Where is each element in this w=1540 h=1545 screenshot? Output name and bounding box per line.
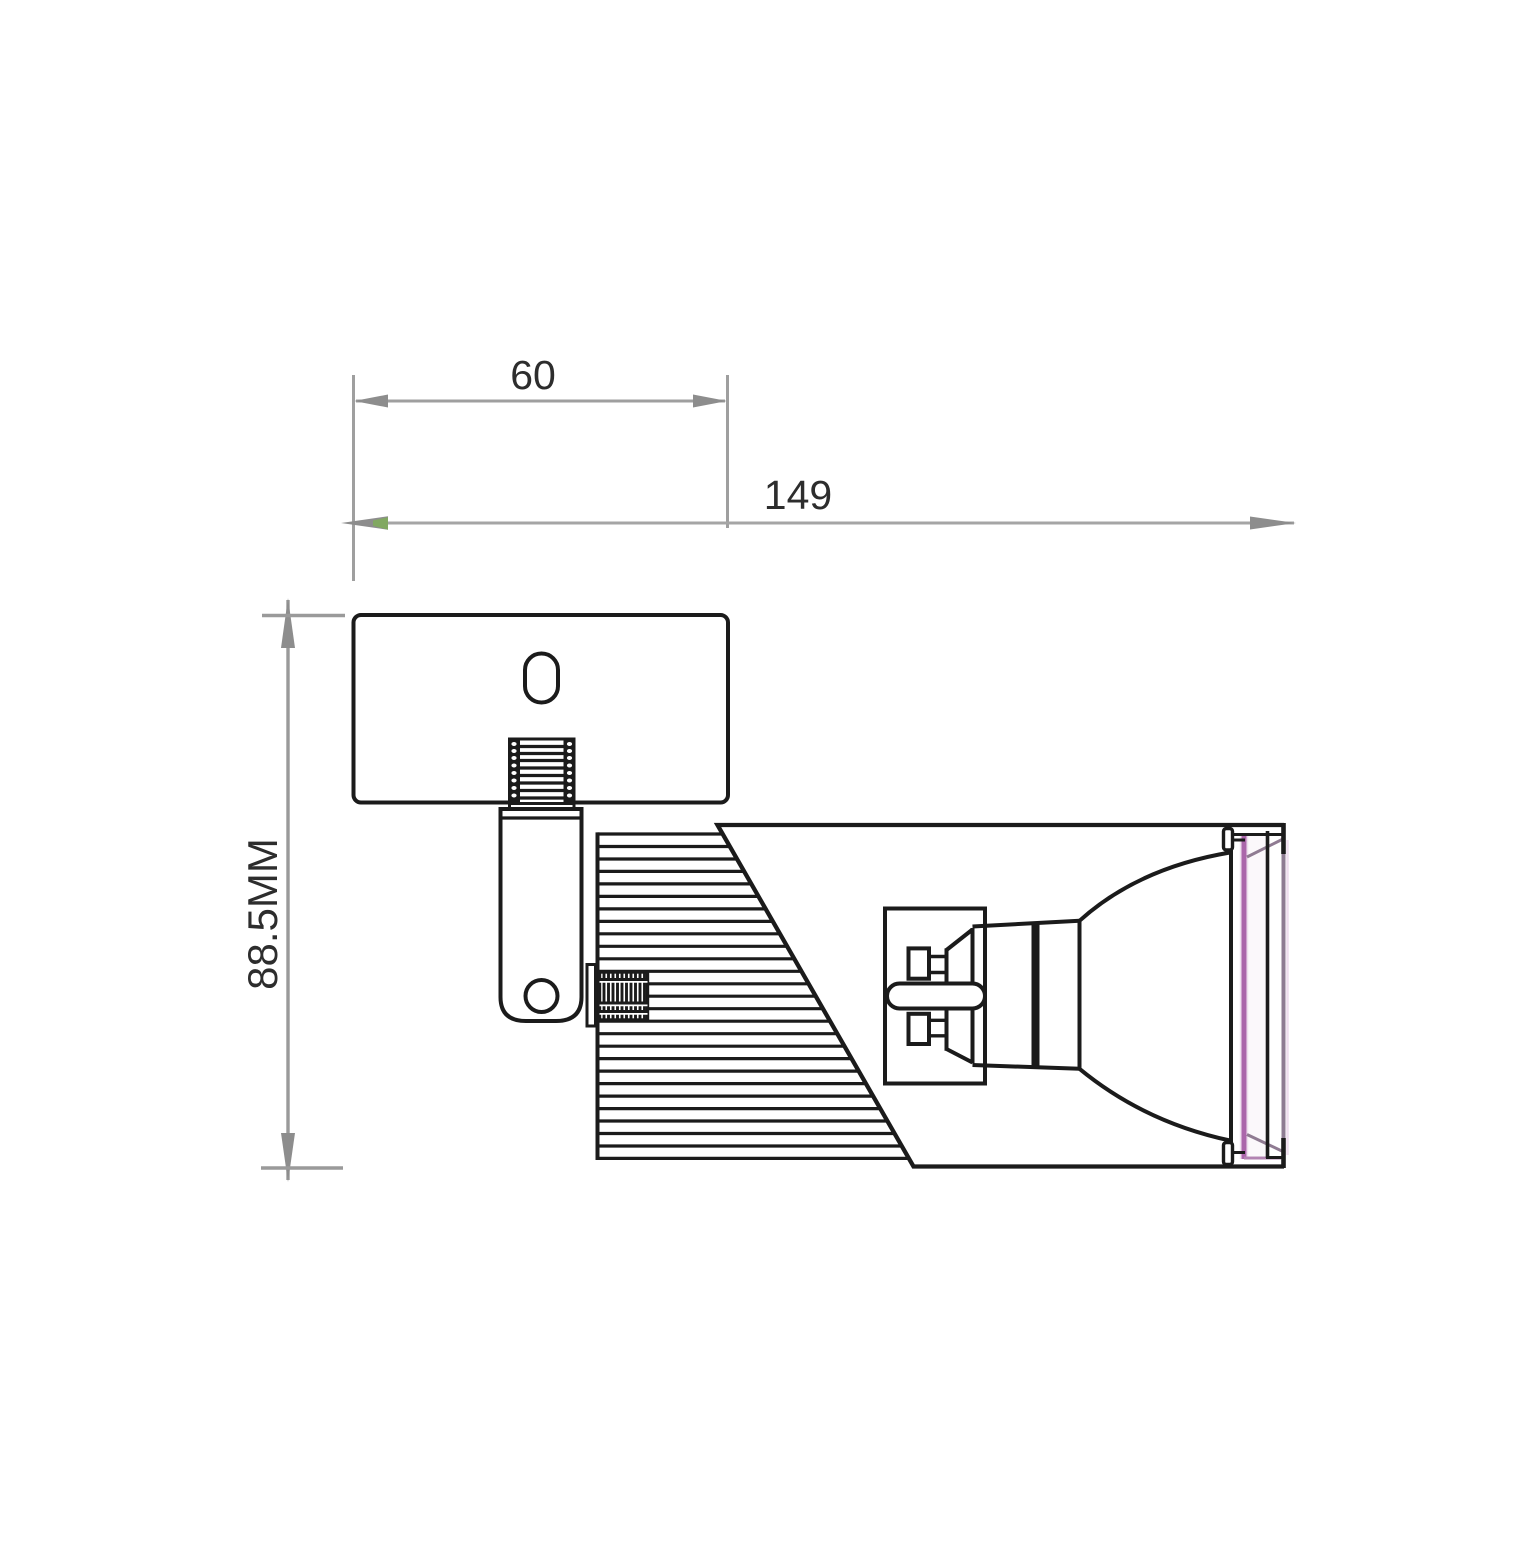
svg-text:60: 60 — [510, 352, 556, 398]
svg-text:149: 149 — [764, 472, 832, 518]
svg-text:88.5MM: 88.5MM — [239, 838, 286, 990]
